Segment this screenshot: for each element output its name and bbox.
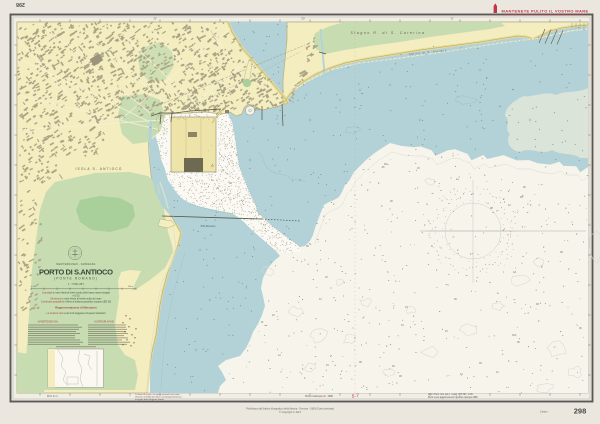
svg-text:© Copyright I.I.1113: © Copyright I.I.1113 bbox=[279, 411, 302, 414]
svg-text:Carta n.: Carta n. bbox=[540, 410, 549, 413]
svg-text:PORTO DI S.ANTIOCO: PORTO DI S.ANTIOCO bbox=[39, 268, 113, 277]
svg-text:(PONTE ROMANO): (PONTE ROMANO) bbox=[54, 277, 98, 281]
svg-text:5121 nuovi aggiornamenti ripor: 5121 nuovi aggiornamenti riportare stamp… bbox=[428, 396, 478, 399]
svg-text:Scandagli in metri riferiti al: Scandagli in metri riferiti al livello m… bbox=[42, 292, 110, 295]
svg-text:La struttura interna dei moli: La struttura interna dei moli soggetta a… bbox=[46, 312, 106, 315]
svg-text:Elevazioni in metri riferite a: Elevazioni in metri riferite al livello … bbox=[51, 298, 103, 301]
svg-text:AVVERTENZE NAV.: AVVERTENZE NAV. bbox=[38, 320, 59, 323]
svg-text:ULTERIORI AVVISI: ULTERIORI AVVISI bbox=[94, 320, 114, 323]
svg-text:MEDITERRANEO - SARDEGNA: MEDITERRANEO - SARDEGNA bbox=[56, 263, 95, 266]
svg-text:29′: 29′ bbox=[153, 17, 157, 21]
svg-text:30′: 30′ bbox=[301, 17, 305, 21]
svg-text:Corr. Prem. Avv. AA.n. 4 pag.: Corr. Prem. Avv. AA.n. 4 pag. IV 5 NN. 1… bbox=[428, 393, 473, 396]
svg-text:Prof. in m.: Prof. in m. bbox=[47, 395, 59, 398]
svg-text:Stagno R. di S. Caterina: Stagno R. di S. Caterina bbox=[351, 31, 426, 35]
svg-text:Coordinate geografiche riferit: Coordinate geografiche riferite al siste… bbox=[41, 301, 111, 304]
svg-text:Rappresentazione di Mercatore: Rappresentazione di Mercatore bbox=[55, 305, 97, 309]
svg-text:m 0,15: m 0,15 bbox=[72, 296, 80, 298]
svg-text:1 : 7.500 (45°): 1 : 7.500 (45°) bbox=[68, 282, 85, 286]
svg-text:5·7: 5·7 bbox=[351, 393, 359, 400]
svg-text:Primo ristampa feb. 1986: Primo ristampa feb. 1986 bbox=[305, 395, 334, 398]
svg-text:298: 298 bbox=[574, 406, 587, 415]
svg-text:500 m: 500 m bbox=[128, 286, 133, 288]
svg-text:ISOLA S. ANTIOCO: ISOLA S. ANTIOCO bbox=[76, 167, 123, 171]
svg-text:MANTENETE PULITO IL VOSTRO MAR: MANTENETE PULITO IL VOSTRO MARE bbox=[502, 9, 589, 14]
svg-text:P.te Romano: P.te Romano bbox=[201, 224, 216, 228]
svg-text:31′: 31′ bbox=[450, 17, 454, 21]
svg-text:eseguito dalla Regione Sarda: eseguito dalla Regione Sarda bbox=[135, 398, 164, 401]
svg-text:298: 298 bbox=[16, 1, 25, 7]
svg-text:m 100: m 100 bbox=[31, 286, 36, 288]
